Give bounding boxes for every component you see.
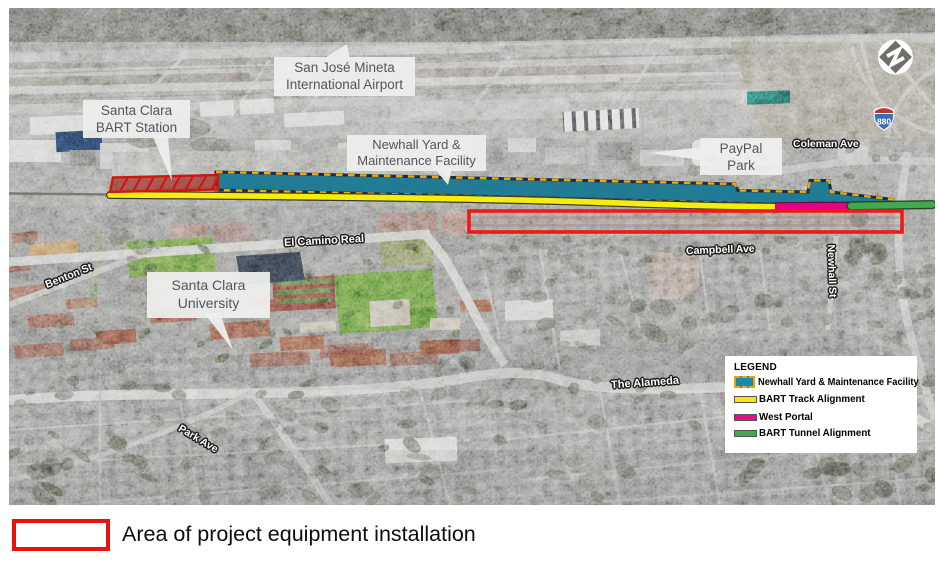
svg-text:880: 880	[877, 117, 891, 127]
